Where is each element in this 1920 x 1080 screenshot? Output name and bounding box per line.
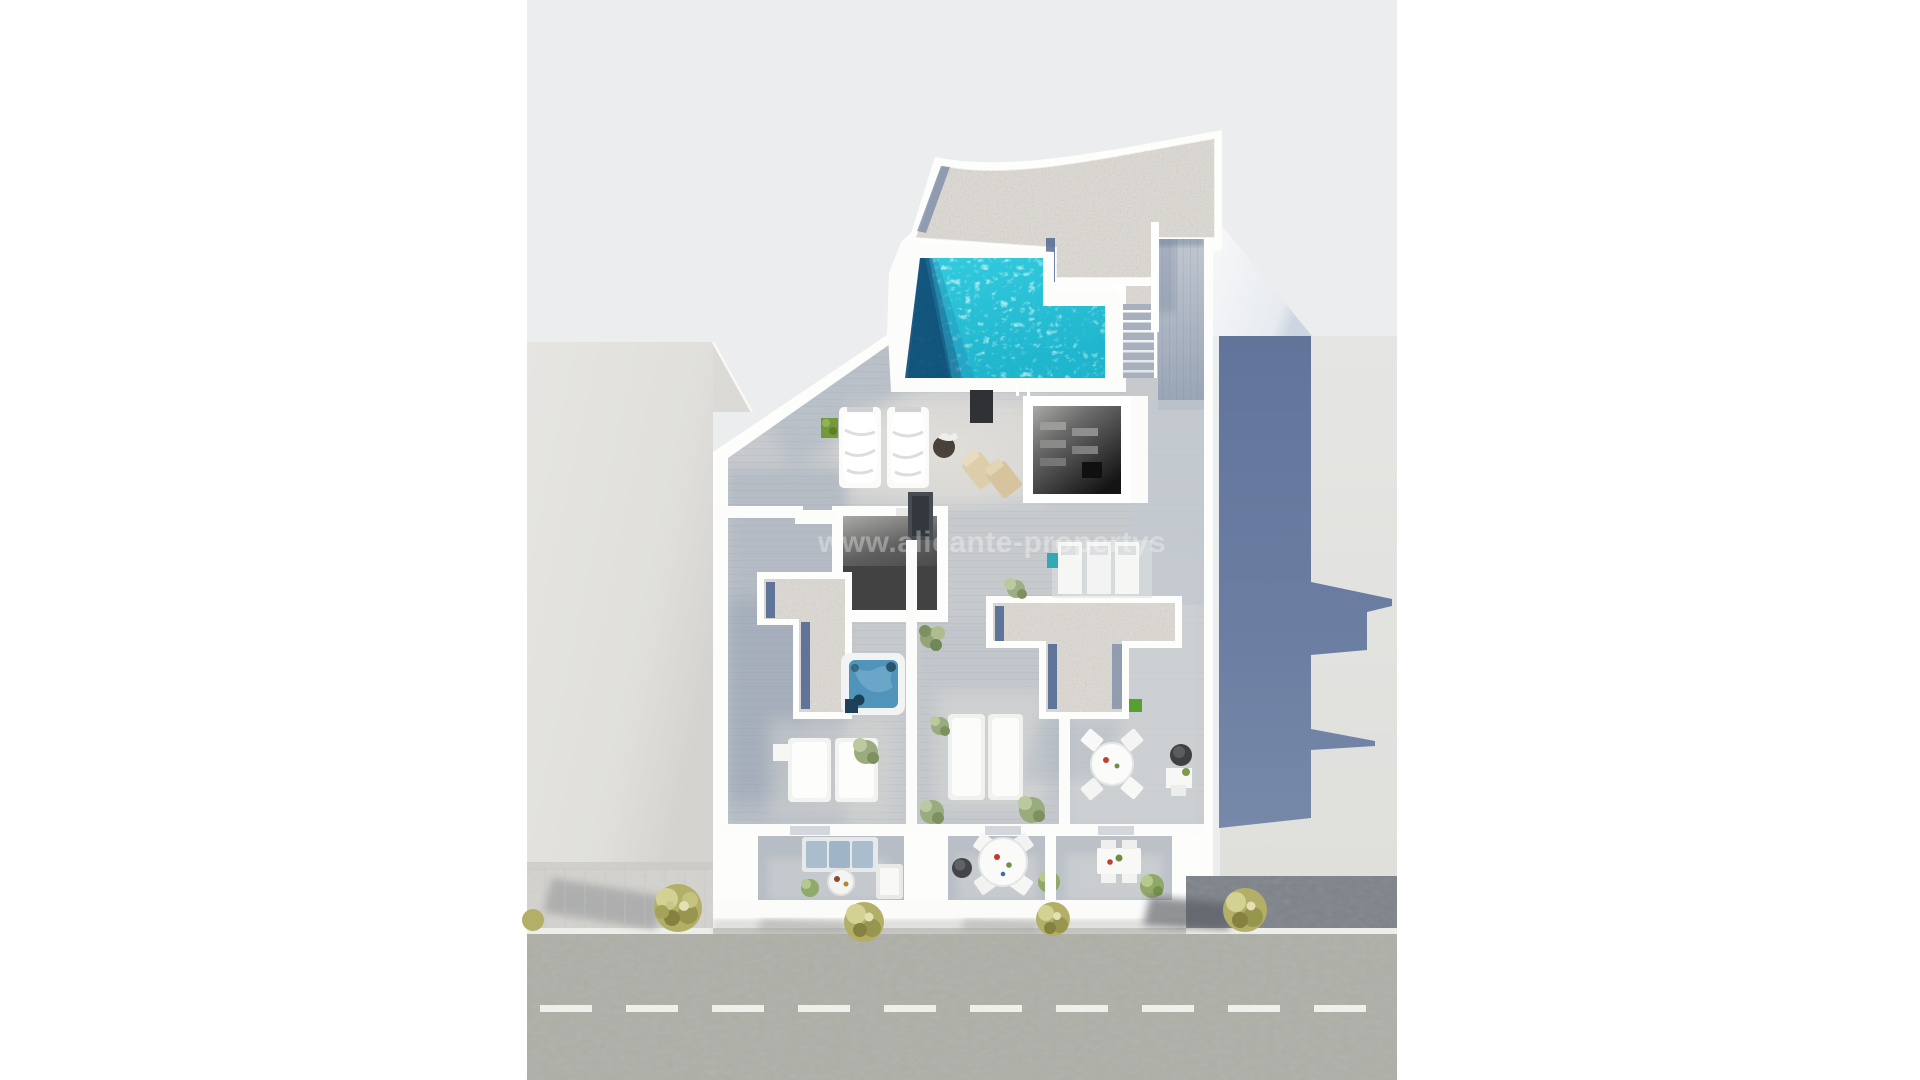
svg-text:www.alicante-propertys: www.alicante-propertys: [817, 526, 1166, 559]
